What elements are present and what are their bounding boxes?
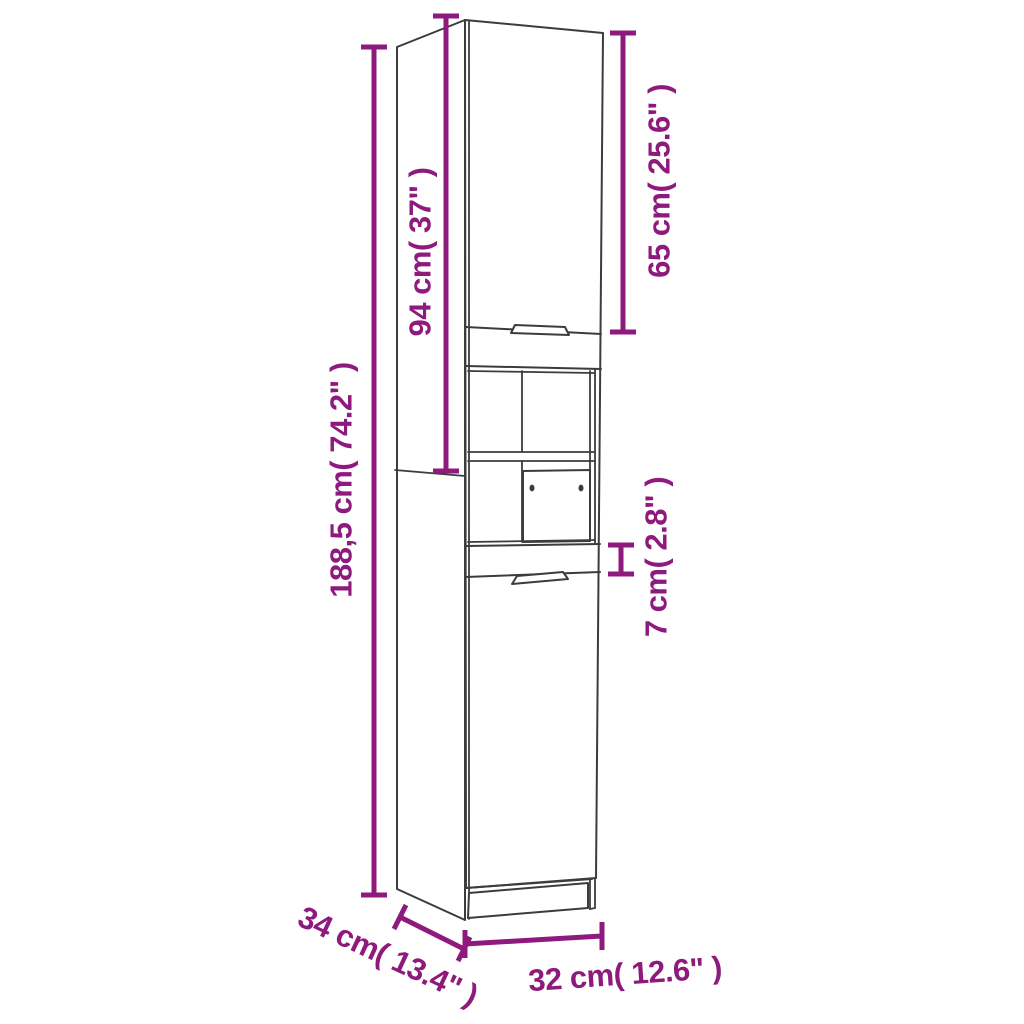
right-front-leg	[590, 878, 595, 909]
cabinet-drawing	[395, 20, 603, 920]
overall-height-dimension-line	[361, 47, 387, 895]
small-inner-door	[523, 470, 590, 542]
small-door-right-knob	[579, 485, 584, 492]
dimension-rail-height: 7 cm( 2.8" )	[608, 477, 674, 637]
upper-door-dimension-line	[610, 33, 636, 332]
rail-label: 7 cm( 2.8" )	[639, 477, 674, 637]
width-label: 32 cm( 12.6" )	[527, 950, 723, 998]
plinth-front	[468, 883, 588, 918]
dimension-width: 32 cm( 12.6" )	[465, 922, 723, 998]
rail-dimension-line	[608, 545, 634, 574]
small-door-left-knob	[530, 485, 535, 492]
upper-door-label: 65 cm( 25.6" )	[642, 84, 677, 278]
width-dimension-line	[465, 922, 602, 958]
upper-door-handle	[511, 325, 569, 335]
dimension-overall-height: 188,5 cm( 74.2" )	[324, 47, 388, 895]
cabinet-dimension-drawing: 188,5 cm( 74.2" ) 94 cm( 37" ) 65 cm( 25…	[0, 0, 1024, 1024]
overall-height-label: 188,5 cm( 74.2" )	[324, 362, 359, 597]
upper-section-label: 94 cm( 37" )	[403, 168, 438, 337]
cabinet-front-face	[465, 20, 603, 888]
dimension-upper-door-height: 65 cm( 25.6" )	[610, 33, 677, 332]
dimension-diagram-canvas: 188,5 cm( 74.2" ) 94 cm( 37" ) 65 cm( 25…	[0, 0, 1024, 1024]
